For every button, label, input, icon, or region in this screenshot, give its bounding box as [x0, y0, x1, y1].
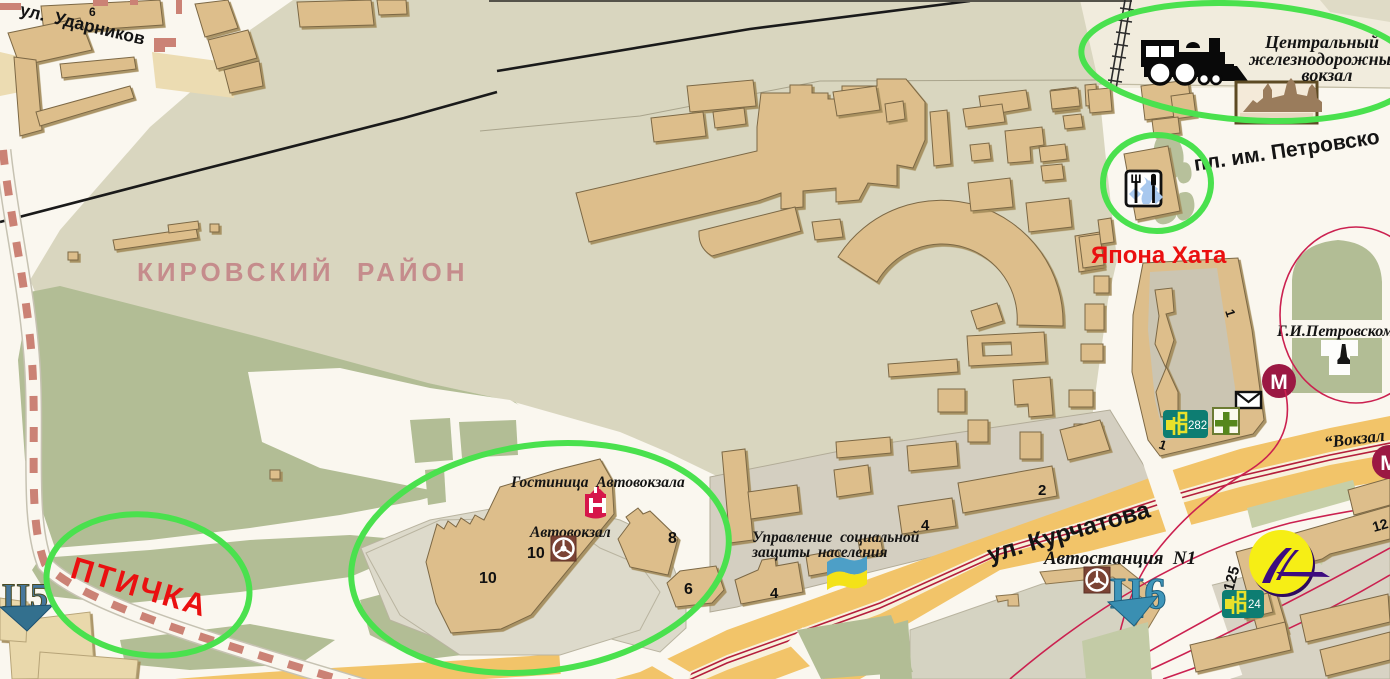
svg-text:защиты населения: защиты населения: [751, 544, 887, 561]
svg-text:2: 2: [1038, 482, 1046, 499]
svg-text:10: 10: [527, 545, 545, 562]
svg-text:24: 24: [1248, 599, 1261, 611]
svg-text:6: 6: [684, 581, 693, 598]
svg-text:282: 282: [1188, 420, 1207, 432]
svg-text:Япона Хата: Япона Хата: [1091, 242, 1227, 269]
svg-text:6: 6: [89, 5, 96, 19]
svg-text:вокзал: вокзал: [1302, 65, 1353, 85]
svg-text:Г.И.Петровскому: Г.И.Петровскому: [1276, 323, 1390, 340]
svg-text:4: 4: [921, 517, 930, 534]
svg-text:Гостиница Автовокзала: Гостиница Автовокзала: [510, 474, 685, 491]
svg-text:Автостанция N1: Автостанция N1: [1043, 548, 1196, 569]
svg-text:М: М: [1380, 452, 1390, 475]
svg-text:КИРОВСКИЙ РАЙОН: КИРОВСКИЙ РАЙОН: [137, 257, 469, 287]
svg-text:4: 4: [770, 585, 779, 602]
svg-text:8: 8: [668, 530, 677, 547]
svg-text:10: 10: [479, 570, 497, 587]
